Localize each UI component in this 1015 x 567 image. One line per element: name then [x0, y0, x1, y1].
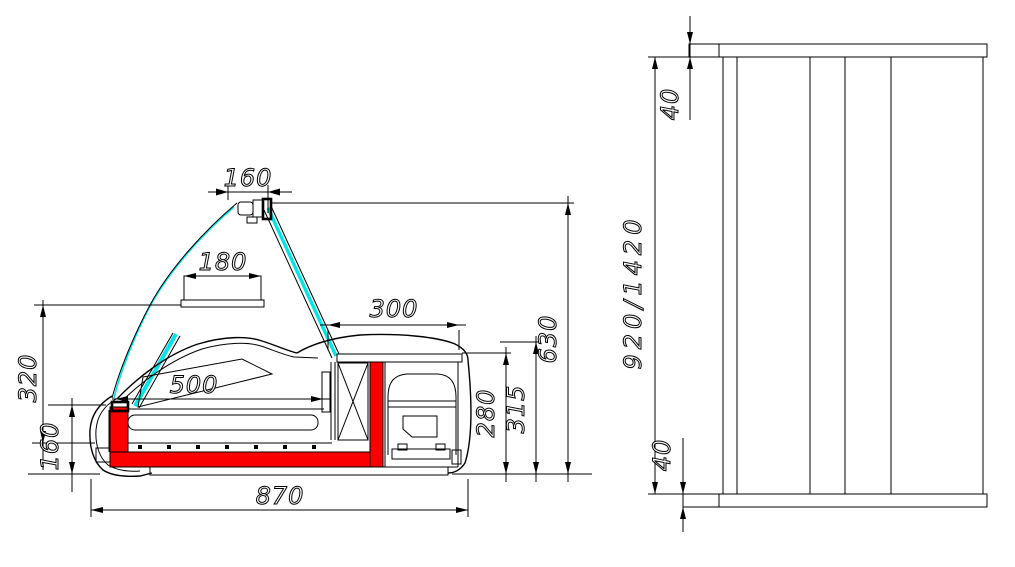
dim-machine-width: 300: [320, 295, 466, 350]
insulation-bottom: [110, 452, 383, 467]
dim-label-machine-width: 300: [370, 295, 419, 323]
dim-label-compartment-height: 315: [502, 385, 530, 434]
display-tray: [128, 415, 318, 430]
dim-top-thickness: 40: [656, 16, 693, 120]
dim-label-canopy-width: 180: [199, 248, 248, 276]
technical-drawing-canvas: 160 180 500 300 320: [0, 0, 1015, 567]
dim-label-deck-length: 500: [170, 371, 219, 399]
countertop-panel: [689, 44, 987, 57]
partition: [322, 362, 335, 440]
insulation-left: [110, 407, 128, 455]
dim-label-lamp-width: 160: [224, 164, 273, 192]
dim-label-body-height: 920/1420: [619, 215, 647, 370]
evaporator-coil: [338, 363, 368, 440]
dim-overall-height: 630: [271, 196, 592, 482]
dim-label-base-height: 160: [36, 422, 64, 471]
deck-rail-end: [322, 372, 330, 412]
canopy-box: [184, 276, 261, 300]
drawing-svg: 160 180 500 300 320: [0, 0, 1015, 567]
dim-label-overall-height: 630: [534, 315, 562, 364]
side-view: 160 180 500 300 320: [14, 164, 592, 517]
base-plinth: [150, 467, 448, 475]
deck-drain-dots: [138, 445, 316, 449]
front-view: 40 920/1420 40: [619, 16, 987, 532]
dim-body-height: 920/1420: [619, 57, 723, 494]
lamp-fixture: [238, 199, 271, 223]
dim-label-glass-height: 320: [14, 354, 42, 403]
compressor-label-plate: [403, 416, 437, 437]
compressor: [388, 374, 461, 464]
dim-canopy-width: 180: [34, 248, 264, 307]
dim-label-overall-depth: 870: [256, 482, 305, 510]
dim-lamp-width: 160: [208, 164, 292, 213]
dim-label-bottom-thickness: 40: [648, 439, 676, 472]
insulation-right: [370, 362, 383, 467]
front-body: [683, 44, 987, 507]
dim-label-inner-height: 280: [472, 389, 500, 438]
compartment-lid: [337, 354, 462, 362]
dim-overall-depth: 870: [91, 479, 468, 517]
dim-label-top-thickness: 40: [656, 88, 684, 121]
base-panel: [683, 494, 987, 507]
